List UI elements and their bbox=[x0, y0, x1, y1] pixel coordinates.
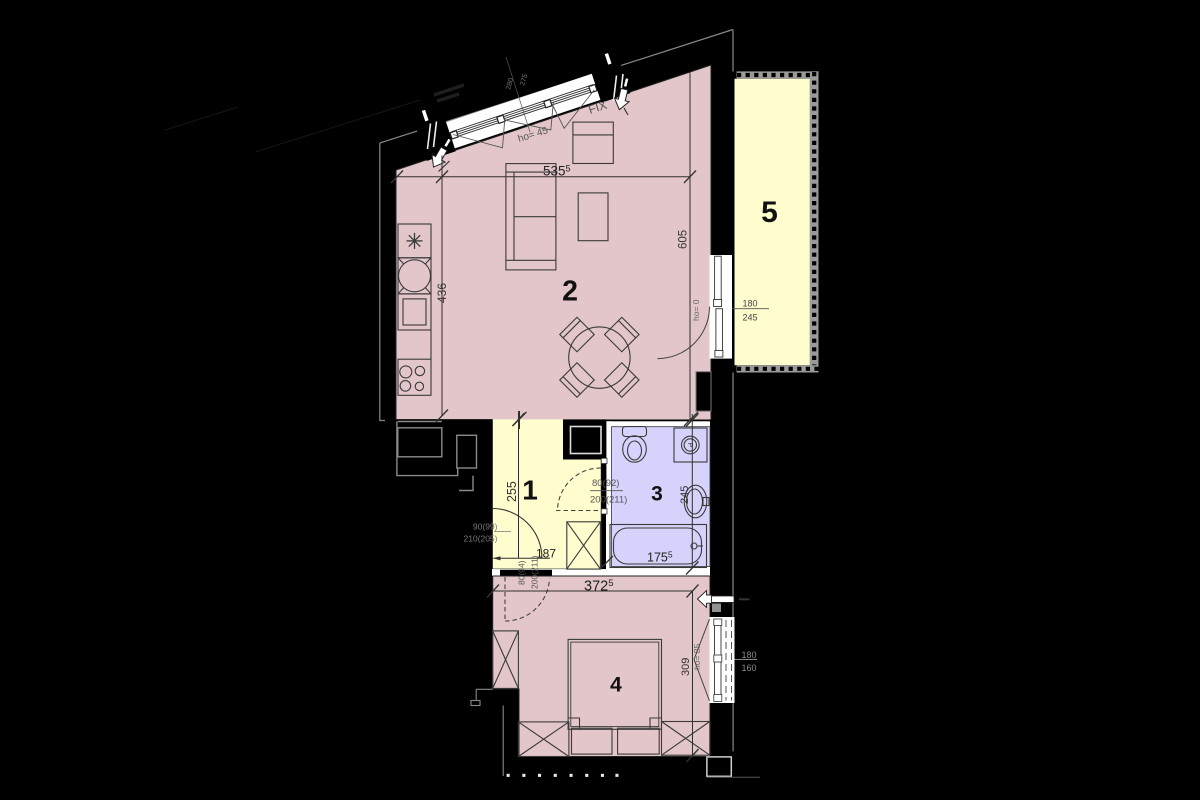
svg-text:80(94): 80(94) bbox=[517, 560, 527, 585]
svg-text:245: 245 bbox=[679, 486, 691, 504]
svg-text:309: 309 bbox=[680, 658, 692, 676]
svg-text:200(211): 200(211) bbox=[530, 555, 540, 589]
svg-text:90(99): 90(99) bbox=[473, 522, 498, 532]
svg-text:ho= 85: ho= 85 bbox=[692, 643, 702, 670]
svg-text:160: 160 bbox=[742, 663, 757, 673]
svg-text:1: 1 bbox=[522, 475, 538, 506]
svg-text:605: 605 bbox=[678, 230, 690, 249]
svg-text:5: 5 bbox=[761, 196, 778, 229]
svg-text:P: P bbox=[686, 443, 693, 448]
svg-text:436: 436 bbox=[435, 283, 449, 303]
svg-text:2: 2 bbox=[562, 276, 578, 308]
svg-text:210(205): 210(205) bbox=[463, 534, 497, 544]
svg-text:4: 4 bbox=[610, 674, 622, 697]
svg-text:ho= 0: ho= 0 bbox=[691, 299, 701, 321]
svg-text:245: 245 bbox=[743, 313, 758, 323]
svg-text:200(211): 200(211) bbox=[590, 495, 627, 506]
svg-text:180: 180 bbox=[742, 650, 757, 660]
svg-text:3: 3 bbox=[651, 483, 663, 506]
svg-text:80(92): 80(92) bbox=[592, 478, 619, 489]
svg-text:180: 180 bbox=[743, 299, 758, 309]
svg-text:255: 255 bbox=[505, 481, 519, 502]
